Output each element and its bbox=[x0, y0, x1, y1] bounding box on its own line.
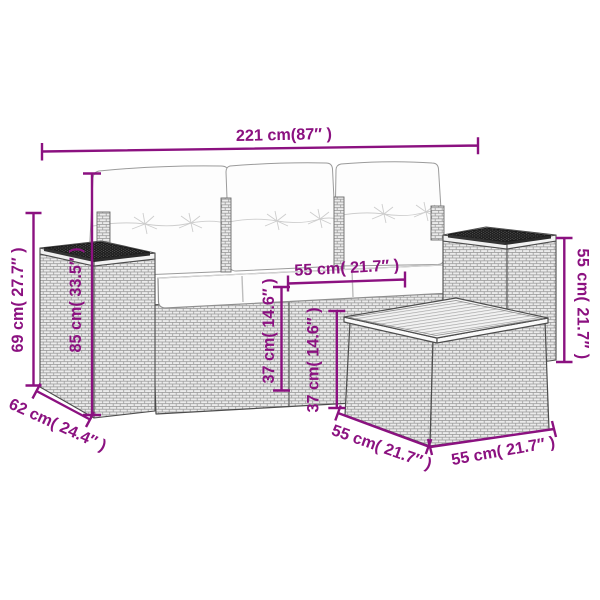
svg-text:85 cm( 33.5″ ): 85 cm( 33.5″ ) bbox=[67, 248, 85, 353]
svg-text:55 cm( 21.7″ ): 55 cm( 21.7″ ) bbox=[574, 248, 592, 359]
svg-text:37 cm( 14.6″ ): 37 cm( 14.6″ ) bbox=[305, 308, 323, 413]
svg-text:221 cm(87″ ): 221 cm(87″ ) bbox=[236, 125, 332, 145]
svg-text:37 cm( 14.6″ ): 37 cm( 14.6″ ) bbox=[260, 279, 278, 384]
svg-text:69 cm( 27.7″ ): 69 cm( 27.7″ ) bbox=[9, 248, 27, 353]
